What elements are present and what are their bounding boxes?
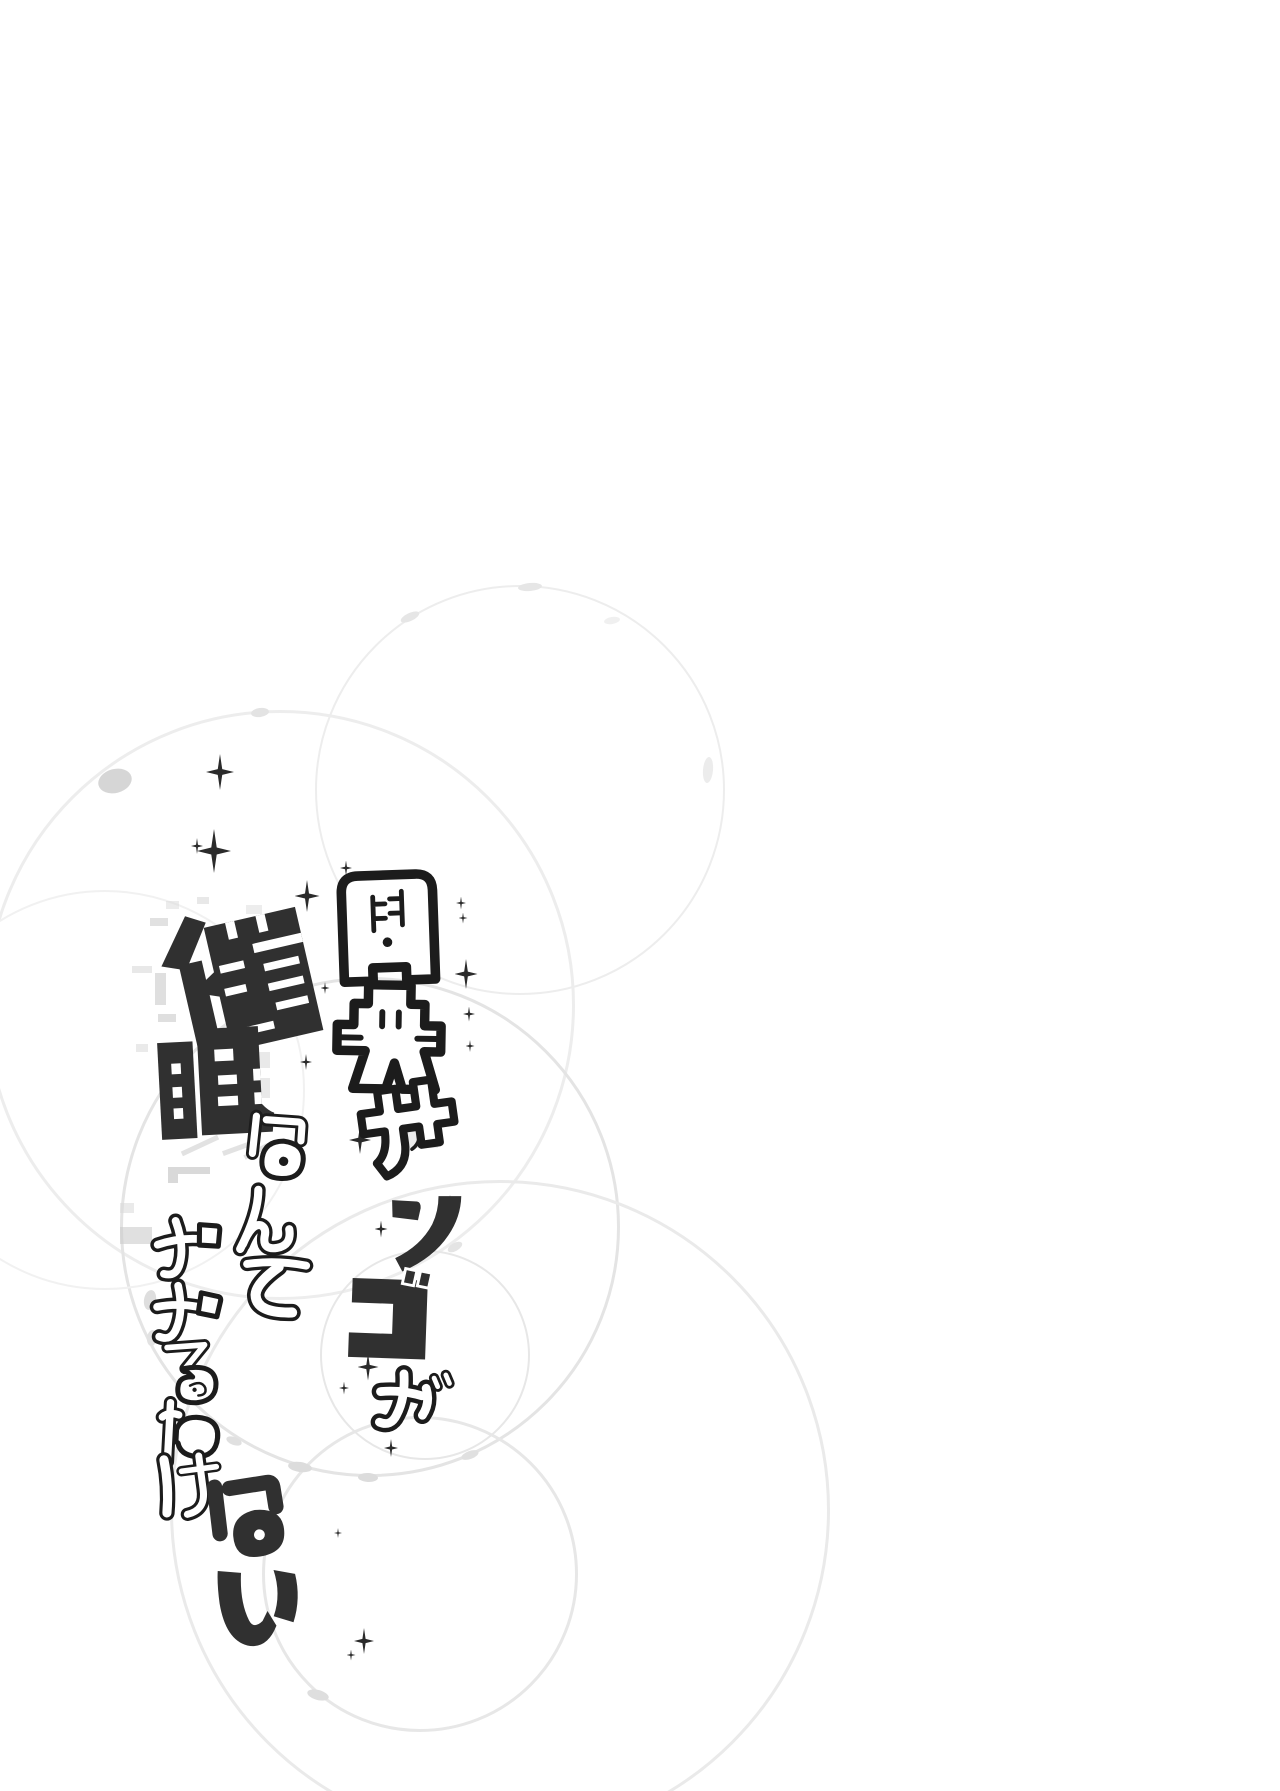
glitch-artifact [168, 1167, 210, 1174]
hiragana-i-icon [204, 1558, 308, 1666]
glitch-artifact [120, 1227, 152, 1244]
glitch-artifact [132, 966, 152, 973]
glitch-artifact [120, 1203, 134, 1213]
hiragana-ga-icon [369, 1359, 460, 1453]
title-glyph-ga [369, 1359, 460, 1453]
title-glyph-te [236, 1252, 316, 1328]
doujin-cover-page: 周央サンゴが催眠なんてかかるわけない [0, 0, 1280, 1791]
decor-layer [0, 0, 1280, 1791]
katakana-go-icon [340, 1264, 437, 1365]
title-glyph-shuu [326, 860, 450, 986]
kanji-shuu-icon [326, 860, 450, 986]
glitch-artifact [168, 1174, 178, 1183]
title-glyph-go [340, 1264, 437, 1365]
glitch-artifact [136, 1044, 148, 1052]
hiragana-te-icon [236, 1252, 316, 1328]
title-glyph-i [204, 1558, 308, 1666]
